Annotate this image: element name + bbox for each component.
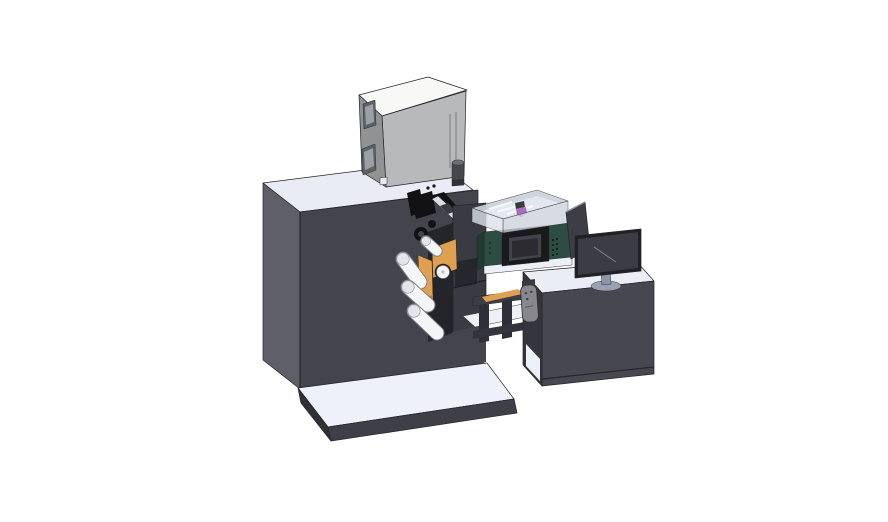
plate-notch bbox=[455, 258, 477, 288]
cylinder-cap bbox=[452, 160, 464, 165]
pendant-body bbox=[520, 284, 539, 322]
cad-render-canvas bbox=[0, 0, 888, 522]
box-window-upper-pane bbox=[365, 104, 374, 125]
printhead-screw-2 bbox=[432, 184, 435, 187]
pendant-body-group bbox=[520, 284, 539, 322]
machine-left-face bbox=[263, 183, 300, 389]
electronics-cabinet bbox=[359, 77, 467, 187]
control-unit bbox=[472, 190, 572, 274]
exhaust-cylinder bbox=[452, 160, 464, 186]
printhead-screw-1 bbox=[426, 186, 429, 189]
desk-front-face bbox=[542, 281, 654, 386]
cylinder-base-band bbox=[452, 179, 464, 186]
roller-end-axle bbox=[441, 270, 444, 273]
roller-2-cap bbox=[402, 281, 414, 293]
hmi-display bbox=[512, 238, 538, 258]
machine-render bbox=[0, 0, 888, 522]
printhead-knob bbox=[428, 220, 436, 228]
operator-desk bbox=[523, 262, 654, 386]
roller-0-cap bbox=[421, 236, 430, 245]
monitor-screen bbox=[578, 232, 638, 275]
box-latch bbox=[380, 177, 387, 185]
unit-left-cap bbox=[477, 232, 484, 270]
roller-1-cap bbox=[397, 253, 409, 265]
roller-3-cap bbox=[408, 305, 420, 317]
